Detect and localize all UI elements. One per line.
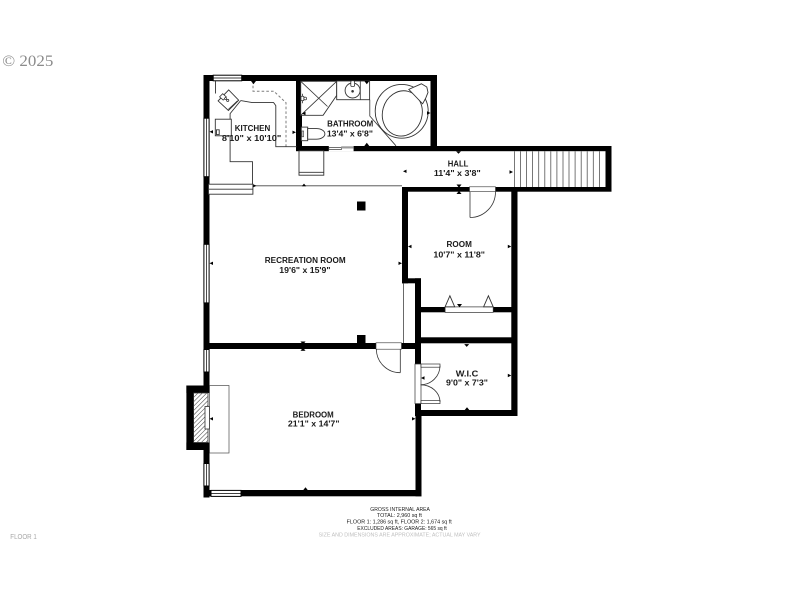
svg-text:FLOOR 1: FLOOR 1 (10, 532, 37, 541)
svg-text:© 2025: © 2025 (2, 53, 53, 70)
svg-text:9'0" x 7'3": 9'0" x 7'3" (446, 377, 488, 387)
svg-text:TOTAL: 2,960 sq ft: TOTAL: 2,960 sq ft (377, 513, 422, 519)
svg-text:GROSS INTERNAL AREA: GROSS INTERNAL AREA (370, 507, 430, 513)
svg-text:BATHROOM: BATHROOM (327, 119, 374, 128)
svg-text:SIZE AND DIMENSIONS ARE APPROX: SIZE AND DIMENSIONS ARE APPROXIMATE; ACT… (319, 533, 481, 539)
svg-text:KITCHEN: KITCHEN (235, 124, 271, 133)
svg-text:21'1" x 14'7": 21'1" x 14'7" (288, 418, 340, 428)
svg-text:8'10" x 10'10": 8'10" x 10'10" (222, 133, 281, 143)
svg-text:11'4" x 3'8": 11'4" x 3'8" (434, 168, 481, 178)
svg-text:19'6" x 15'9": 19'6" x 15'9" (279, 265, 330, 275)
svg-text:10'7" x 11'8": 10'7" x 11'8" (433, 250, 485, 260)
svg-text:RECREATION ROOM: RECREATION ROOM (265, 256, 346, 265)
svg-text:EXCLUDED AREAS: GARAGE: 565 sq: EXCLUDED AREAS: GARAGE: 565 sq ft (357, 526, 447, 532)
svg-text:ROOM: ROOM (447, 240, 473, 249)
svg-text:13'4" x 6'8": 13'4" x 6'8" (327, 128, 373, 138)
svg-text:FLOOR 1: 1,286 sq ft, FLOOR 2:: FLOOR 1: 1,286 sq ft, FLOOR 2: 1,674 sq … (347, 520, 452, 526)
